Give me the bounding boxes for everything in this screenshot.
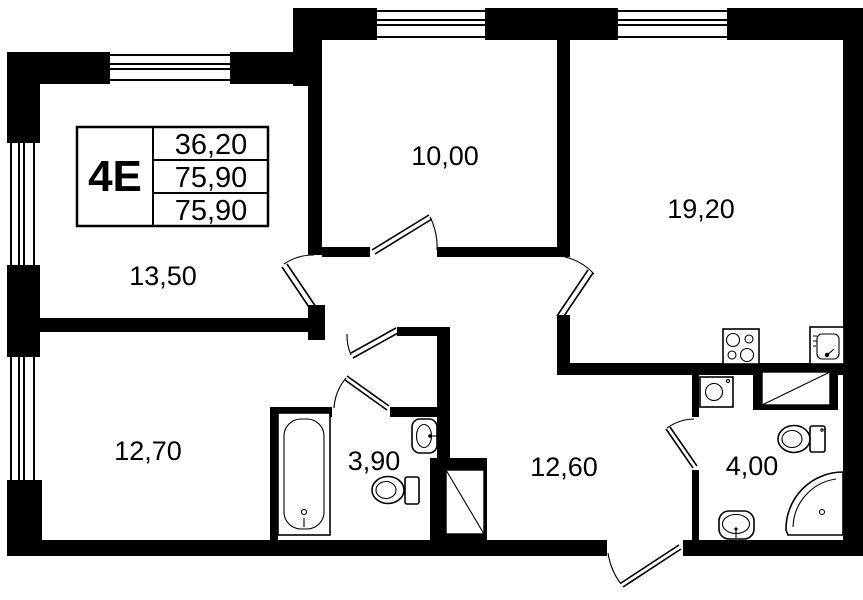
door-leaf: [351, 328, 398, 358]
door-leaf: [666, 427, 697, 468]
door-arc: [430, 217, 437, 250]
door-room-12-70: [347, 328, 398, 358]
window: [11, 143, 34, 265]
door-bathroom-4-00: [666, 419, 697, 468]
spec-row-value: 75,90: [175, 162, 248, 194]
wall: [7, 540, 607, 556]
door-room-13-50: [282, 255, 316, 310]
wall: [727, 8, 843, 40]
windows: [11, 11, 727, 480]
door-arc: [347, 334, 351, 355]
door-arc: [334, 378, 346, 408]
kitchen-sink-icon: [810, 327, 844, 364]
wall: [485, 8, 618, 40]
room-area-label-3-90: 3,90: [348, 446, 401, 476]
bathtub-icon: [278, 413, 330, 535]
toilet-icon: [372, 477, 419, 505]
room-area-label-19-20: 19,20: [667, 194, 735, 224]
wall: [36, 318, 310, 332]
door-leaf: [345, 376, 389, 410]
room-area-label-12-60: 12,60: [530, 452, 598, 482]
window: [11, 357, 34, 480]
stove-icon: [723, 329, 759, 364]
window: [110, 55, 230, 80]
door-arc: [565, 257, 594, 274]
window: [377, 11, 485, 37]
washing-machine-icon: [700, 377, 733, 407]
vent-shaft-icon: [446, 470, 484, 534]
vent-shaft-icon: [762, 372, 830, 405]
room-area-label-12-70: 12,70: [114, 436, 182, 466]
room-area-label-13-50: 13,50: [129, 261, 197, 291]
wall: [7, 265, 40, 357]
door-leaf: [282, 264, 316, 310]
wall: [270, 407, 278, 540]
wall: [557, 315, 570, 368]
toilet-icon: [778, 426, 825, 453]
wall: [7, 52, 40, 143]
shower-icon: [786, 472, 843, 535]
room-area-label-10-00: 10,00: [411, 141, 479, 171]
wall: [437, 247, 570, 257]
door-leaf: [372, 215, 432, 254]
entrance-door: [608, 545, 681, 587]
wall: [7, 480, 42, 542]
washbasin-icon: [412, 419, 437, 453]
wall: [557, 40, 570, 255]
floor-plan: 4E 36,20 75,90 75,90 13,50 10,00 19,20 1…: [0, 0, 863, 600]
unit-type-label: 4E: [88, 152, 142, 201]
door-bathroom-3-90: [334, 376, 389, 410]
wall: [390, 407, 437, 417]
wall: [322, 247, 370, 257]
wall: [308, 84, 322, 255]
wall: [683, 540, 863, 556]
spec-row-value: 75,90: [175, 195, 248, 227]
wall: [230, 52, 307, 84]
door-arc: [284, 255, 314, 264]
wall: [692, 375, 699, 417]
window: [618, 11, 727, 37]
door-arc: [608, 553, 621, 584]
title-block: 4E 36,20 75,90 75,90: [77, 127, 268, 227]
wall: [437, 327, 450, 460]
washbasin-icon: [719, 511, 754, 539]
wall: [692, 470, 699, 540]
door-leaf: [621, 545, 681, 587]
room-area-label-4-00: 4,00: [726, 451, 779, 481]
floor-plan-svg: 4E 36,20 75,90 75,90 13,50 10,00 19,20 1…: [0, 0, 863, 600]
door-arc: [667, 419, 694, 428]
door-leaf: [557, 270, 593, 319]
doors: [282, 215, 697, 587]
spec-row-value: 36,20: [175, 129, 248, 161]
door-room-10-00: [372, 215, 437, 254]
door-room-19-20: [557, 257, 594, 319]
wall: [843, 8, 863, 556]
